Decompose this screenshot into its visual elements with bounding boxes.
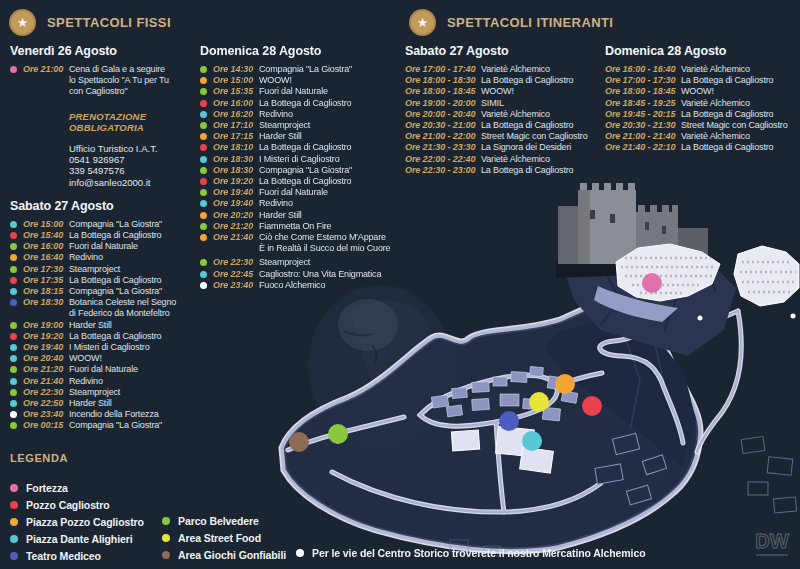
event-time: Ore 16:00	[213, 98, 259, 109]
event-title: Cagliostro: Una Vita Enigmatica	[259, 269, 400, 280]
legend-label: Piazza Dante Alighieri	[26, 533, 133, 545]
orange-legend-dot	[10, 518, 18, 526]
schedule-entry: Ore 22:30Steamproject	[200, 257, 400, 268]
schedule-column-fixed-1: Venerdì 26 AgostoOre 21:00Cena di Gala e…	[10, 44, 200, 432]
event-time: Ore 19:40	[23, 342, 69, 353]
contact-line: Ufficio Turistico I.A.T.	[69, 143, 200, 154]
map-marker-area-giochi-gonfiabili	[289, 432, 309, 452]
schedule-entry: Ore 20:30 - 21:30Street Magic con Caglio…	[605, 120, 800, 131]
event-time: Ore 15:40	[23, 230, 69, 241]
map-marker-pozzo-cagliostro	[582, 396, 602, 416]
event-title: Fiammetta On Fire	[259, 221, 400, 232]
cyan-location-dot	[10, 221, 17, 228]
event-title: La Bottega di Cagliostro	[481, 75, 603, 86]
event-time: Ore 15:00	[213, 75, 259, 86]
schedule-entry: Ore 16:00 - 16:40Varietè Alchemico	[605, 64, 800, 75]
schedule-entry: Ore 18:30I Misteri di Cagliostro	[200, 154, 400, 165]
legend-item: Teatro Mediceo	[10, 547, 144, 564]
cyan-legend-dot	[10, 535, 18, 543]
event-time: Ore 18:30	[213, 165, 259, 176]
day-date-header: Venerdì 26 Agosto	[10, 44, 200, 58]
note-line: PRENOTAZIONE	[69, 111, 200, 123]
event-title: Harder Still	[69, 320, 200, 331]
schedule-entry: Ore 16:00La Bottega di Cagliostro	[200, 98, 400, 109]
event-time: Ore 17:00 - 17:30	[605, 75, 681, 86]
event-time: Ore 21:40	[213, 232, 259, 243]
event-time: Ore 15:35	[213, 86, 259, 97]
schedule-entry: Ore 15:40La Bottega di Cagliostro	[10, 230, 200, 241]
event-time: Ore 17:10	[213, 120, 259, 131]
cyan-location-dot	[10, 355, 17, 362]
schedule-entry: Ore 23:40Incendio della Fortezza	[10, 409, 200, 420]
day-block: Domenica 28 AgostoOre 14:30Compagnia "La…	[200, 44, 400, 291]
event-time: Ore 22:30	[23, 387, 69, 398]
map-marker-parco-belvedere	[328, 424, 348, 444]
event-program-poster: ★ SPETTACOLI FISSI ★ SPETTACOLI ITINERAN…	[0, 0, 800, 569]
event-title: Redivino	[69, 376, 200, 387]
day-block: Venerdì 26 AgostoOre 21:00Cena di Gala e…	[10, 44, 200, 188]
cyan-location-dot	[200, 156, 207, 163]
event-time: Ore 21:20	[23, 364, 69, 375]
schedule-entry: Ore 17:35La Bottega di Cagliostro	[10, 275, 200, 286]
itinerant-shows-title: SPETTACOLI ITINERANTI	[447, 15, 613, 30]
schedule-entry: Ore 19:40I Misteri di Cagliostro	[10, 342, 200, 353]
event-title: Steamproject	[259, 257, 400, 268]
fixed-shows-title: SPETTACOLI FISSI	[47, 15, 171, 30]
event-time: Ore 21:40	[23, 376, 69, 387]
event-time: Ore 23:40	[213, 280, 259, 291]
white-location-dot	[10, 411, 17, 418]
event-title: Harder Still	[259, 210, 400, 221]
event-time: Ore 19:00 - 20:00	[405, 98, 481, 109]
legend-label: Pozzo Cagliostro	[26, 499, 110, 511]
schedule-entry: Ore 18:15Compagnia "La Giostra"	[10, 286, 200, 297]
event-title: Harder Still	[259, 131, 400, 142]
event-time: Ore 18:10	[213, 142, 259, 153]
event-time: Ore 22:50	[23, 398, 69, 409]
event-time: Ore 15:00	[23, 219, 69, 230]
event-time: Ore 20:20	[213, 210, 259, 221]
reservation-note: PRENOTAZIONEOBBLIGATORIA	[69, 111, 200, 134]
schedule-entry: Ore 19:20La Bottega di Cagliostro	[200, 176, 400, 187]
pink-legend-dot	[10, 484, 18, 492]
schedule-entry: Ore 22:30 - 23:00La Bottega di Cagliostr…	[405, 165, 603, 176]
event-time: Ore 18:45 - 19:25	[605, 98, 681, 109]
cyan-location-dot	[200, 200, 207, 207]
event-title: La Bottega di Cagliostro	[681, 142, 800, 153]
event-time: Ore 22:30	[213, 257, 259, 268]
event-time: Ore 17:15	[213, 131, 259, 142]
green-location-dot	[10, 389, 17, 396]
day-date-header: Sabato 27 Agosto	[405, 44, 603, 58]
legend-column-2: Parco BelvedereArea Street FoodArea Gioc…	[162, 513, 286, 563]
event-time: Ore 18:15	[23, 286, 69, 297]
schedule-entry: Ore 21:00 - 22:00Street Magic con Caglio…	[405, 131, 603, 142]
day-date-header: Domenica 28 Agosto	[200, 44, 400, 58]
day-block: Sabato 27 AgostoOre 17:00 - 17:40Varietè…	[405, 44, 603, 176]
schedule-entry: Ore 17:10Steamproject	[200, 120, 400, 131]
schedule-entry: Ore 15:35Fuori dal Naturale	[200, 86, 400, 97]
event-title: WOOW!	[69, 353, 200, 364]
event-time: Ore 20:00 - 20:40	[405, 109, 481, 120]
event-title: La Bottega di Cagliostro	[681, 75, 800, 86]
event-title: SIMIL	[481, 98, 603, 109]
event-title: Steamproject	[69, 264, 200, 275]
event-time: Ore 22:30 - 23:00	[405, 165, 481, 176]
schedule-entry: Ore 21:30 - 23:30La Signora dei Desideri	[405, 142, 603, 153]
schedule-entry: Ore 19:40Fuori dal Naturale	[200, 187, 400, 198]
event-title: Redivino	[259, 198, 400, 209]
legend-item: Area Street Food	[162, 530, 286, 547]
event-title: La Bottega di Cagliostro	[259, 98, 400, 109]
cyan-location-dot	[200, 271, 207, 278]
legend-item: Piazza Dante Alighieri	[10, 530, 144, 547]
white-location-dot	[200, 282, 207, 289]
event-time: Ore 21:00	[23, 64, 69, 75]
map-marker-teatro-mediceo	[499, 411, 519, 431]
schedule-entry: Ore 19:00 - 20:00SIMIL	[405, 98, 603, 109]
red-location-dot	[200, 100, 207, 107]
schedule-entry: Ore 22:45Cagliostro: Una Vita Enigmatica	[200, 269, 400, 280]
schedule-entry: Ore 16:20Redivino	[200, 109, 400, 120]
event-time: Ore 19:20	[23, 331, 69, 342]
blue-legend-dot	[10, 552, 18, 560]
star-icon: ★	[9, 9, 36, 36]
event-title: La Bottega di Cagliostro	[69, 275, 200, 286]
schedule-entry: Ore 21:20Fiammetta On Fire	[200, 221, 400, 232]
red-legend-dot	[10, 501, 18, 509]
schedule-entry: Ore 18:00 - 18:45WOOW!	[405, 86, 603, 97]
event-time: Ore 22:00 - 22:40	[405, 154, 481, 165]
red-location-dot	[200, 144, 207, 151]
event-title: Steamproject	[259, 120, 400, 131]
pink-location-dot	[10, 66, 17, 73]
event-title: Fuori dal Naturale	[259, 187, 400, 198]
green-location-dot	[200, 122, 207, 129]
event-time: Ore 19:45 - 20:15	[605, 109, 681, 120]
red-location-dot	[10, 232, 17, 239]
cyan-location-dot	[10, 344, 17, 351]
legend-label: Parco Belvedere	[178, 515, 259, 527]
event-time: Ore 18:30	[23, 297, 69, 308]
schedule-entry: Ore 18:30Botanica Celeste nel Segno di F…	[10, 297, 200, 319]
event-time: Ore 16:40	[23, 252, 69, 263]
schedule-entry: Ore 16:40Redivino	[10, 252, 200, 263]
map-marker-fortezza	[642, 273, 662, 293]
green-location-dot	[10, 322, 17, 329]
event-title: La Bottega di Cagliostro	[259, 142, 400, 153]
yellow-legend-dot	[162, 534, 170, 542]
event-time: Ore 19:00	[23, 320, 69, 331]
event-time: Ore 17:00 - 17:40	[405, 64, 481, 75]
event-title: Redivino	[259, 109, 400, 120]
event-time: Ore 21:20	[213, 221, 259, 232]
itinerant-shows-header: ★ SPETTACOLI ITINERANTI	[409, 9, 613, 36]
event-time: Ore 17:30	[23, 264, 69, 275]
event-title: La Bottega di Cagliostro	[481, 120, 603, 131]
event-title: I Misteri di Cagliostro	[259, 154, 400, 165]
legend-item: Piazza Pozzo Cagliostro	[10, 514, 144, 531]
event-title: Varietè Alchemico	[481, 109, 603, 120]
green-location-dot	[10, 266, 17, 273]
schedule-entry: Ore 22:50Harder Still	[10, 398, 200, 409]
green-legend-dot	[162, 517, 170, 525]
green-location-dot	[200, 259, 207, 266]
legend-label: Area Giochi Gonfiabili	[178, 549, 286, 561]
day-block: Domenica 28 AgostoOre 16:00 - 16:40Varie…	[605, 44, 800, 154]
schedule-entry: Ore 14:30Compagnia "La Giostra"	[200, 64, 400, 75]
event-title: Compagnia "La Giostra"	[69, 286, 200, 297]
event-time: Ore 19:40	[213, 198, 259, 209]
event-title: Varietè Alchemico	[681, 131, 800, 142]
event-title: Fuori dal Naturale	[259, 86, 400, 97]
schedule-entry: Ore 18:45 - 19:25Varietè Alchemico	[605, 98, 800, 109]
event-time: Ore 21:00 - 22:00	[405, 131, 481, 142]
event-time: Ore 21:40 - 22:10	[605, 142, 681, 153]
green-location-dot	[10, 366, 17, 373]
day-block: Sabato 27 AgostoOre 15:00Compagnia "La G…	[10, 199, 200, 432]
schedule-column-fixed-2: Domenica 28 AgostoOre 14:30Compagnia "La…	[200, 44, 400, 291]
schedule-entry: Ore 15:00WOOW!	[200, 75, 400, 86]
event-time: Ore 18:00 - 18:45	[605, 86, 681, 97]
legend-item: Fortezza	[10, 480, 144, 497]
schedule-entry: Ore 20:30 - 21:00La Bottega di Cagliostr…	[405, 120, 603, 131]
legend-item: Pozzo Cagliostro	[10, 497, 144, 514]
schedule-entry: Ore 20:40WOOW!	[10, 353, 200, 364]
legend-item: Area Giochi Gonfiabili	[162, 547, 286, 564]
note-line: OBBLIGATORIA	[69, 122, 200, 134]
schedule-entry: Ore 18:00 - 18:45WOOW!	[605, 86, 800, 97]
event-time: Ore 21:00 - 21:40	[605, 131, 681, 142]
event-time: Ore 18:00 - 18:45	[405, 86, 481, 97]
schedule-entry: Ore 17:15Harder Still	[200, 131, 400, 142]
schedule-entry: Ore 20:20Harder Still	[200, 210, 400, 221]
event-title: Varietè Alchemico	[481, 154, 603, 165]
white-legend-dot	[296, 549, 304, 557]
schedule-entry: Ore 21:20Fuori dal Naturale	[10, 364, 200, 375]
legend-label: Fortezza	[26, 482, 68, 494]
cyan-location-dot	[10, 400, 17, 407]
event-title: WOOW!	[481, 86, 603, 97]
event-title: Fuoco Alchemico	[259, 280, 400, 291]
event-time: Ore 16:00 - 16:40	[605, 64, 681, 75]
event-time: Ore 20:40	[23, 353, 69, 364]
market-note: Per le vie del Centro Storico troverete …	[296, 547, 645, 559]
blue-location-dot	[10, 299, 17, 306]
schedule-entry: Ore 18:10La Bottega di Cagliostro	[200, 142, 400, 153]
schedule-column-itinerant-2: Domenica 28 AgostoOre 16:00 - 16:40Varie…	[605, 44, 800, 154]
orange-location-dot	[200, 77, 207, 84]
contact-line: 0541 926967	[69, 154, 200, 165]
event-time: Ore 18:30	[213, 154, 259, 165]
event-time: Ore 17:35	[23, 275, 69, 286]
legend-column-1: FortezzaPozzo CagliostroPiazza Pozzo Cag…	[10, 480, 144, 564]
event-title: La Bottega di Cagliostro	[69, 331, 200, 342]
event-title: Steamproject	[69, 387, 200, 398]
star-icon: ★	[409, 9, 436, 36]
schedule-entry: Ore 17:00 - 17:30La Bottega di Cagliostr…	[605, 75, 800, 86]
market-note-label: Per le vie del Centro Storico troverete …	[312, 547, 645, 559]
event-title: Fuori dal Naturale	[69, 364, 200, 375]
map-marker-area-street-food	[529, 392, 549, 412]
watermark-monogram: DW	[755, 530, 788, 552]
schedule-entry: Ore 18:00 - 18:30La Bottega di Cagliostr…	[405, 75, 603, 86]
event-time: Ore 16:00	[23, 241, 69, 252]
green-location-dot	[200, 189, 207, 196]
schedule-entry: Ore 17:30Steamproject	[10, 264, 200, 275]
orange-location-dot	[10, 254, 17, 261]
event-time: Ore 19:40	[213, 187, 259, 198]
schedule-entry: Ore 19:40Redivino	[200, 198, 400, 209]
orange-location-dot	[200, 212, 207, 219]
event-title: Redivino	[69, 252, 200, 263]
event-title: Compagnia "La Giostra"	[69, 420, 200, 431]
event-time: Ore 20:30 - 21:00	[405, 120, 481, 131]
legend-label: Area Street Food	[178, 532, 261, 544]
event-time: Ore 14:30	[213, 64, 259, 75]
event-title: Varietè Alchemico	[681, 64, 800, 75]
schedule-entry: Ore 18:30Compagnia "La Giostra"	[200, 165, 400, 176]
cyan-location-dot	[10, 378, 17, 385]
map-marker-piazza-pozzo-cagliostro	[555, 374, 575, 394]
orange-location-dot	[200, 234, 207, 241]
event-title: Compagnia "La Giostra"	[69, 219, 200, 230]
cyan-location-dot	[10, 288, 17, 295]
green-location-dot	[10, 243, 17, 250]
contact-line: info@sanleo2000.it	[69, 177, 200, 188]
legend-title: LEGENDA	[10, 452, 310, 464]
day-date-header: Domenica 28 Agosto	[605, 44, 800, 58]
event-title: Varietè Alchemico	[681, 98, 800, 109]
schedule-entry: Ore 20:00 - 20:40Varietè Alchemico	[405, 109, 603, 120]
schedule-entry: Ore 23:40Fuoco Alchemico	[200, 280, 400, 291]
event-title: Fuori dal Naturale	[69, 241, 200, 252]
green-location-dot	[200, 167, 207, 174]
event-time: Ore 16:20	[213, 109, 259, 120]
event-title: La Signora dei Desideri	[481, 142, 603, 153]
fixed-shows-header: ★ SPETTACOLI FISSI	[9, 9, 171, 36]
schedule-entry: Ore 22:00 - 22:40Varietè Alchemico	[405, 154, 603, 165]
schedule-entry: Ore 21:00 - 21:40Varietè Alchemico	[605, 131, 800, 142]
brown-legend-dot	[162, 551, 170, 559]
event-title: Botanica Celeste nel Segno di Federico d…	[69, 297, 200, 319]
event-title: Street Magic con Cagliostro	[681, 120, 800, 131]
event-time: Ore 21:30 - 23:30	[405, 142, 481, 153]
event-title: Ciò che Come Esterno M'Appare È in Realt…	[259, 232, 400, 254]
event-title: La Bottega di Cagliostro	[481, 165, 603, 176]
event-title: Incendio della Fortezza	[69, 409, 200, 420]
schedule-entry: Ore 22:30Steamproject	[10, 387, 200, 398]
schedule-entry: Ore 21:40Redivino	[10, 376, 200, 387]
schedule-entry: Ore 19:00Harder Still	[10, 320, 200, 331]
cyan-location-dot	[200, 111, 207, 118]
green-location-dot	[200, 223, 207, 230]
red-location-dot	[200, 178, 207, 185]
event-time: Ore 20:30 - 21:30	[605, 120, 681, 131]
red-location-dot	[10, 277, 17, 284]
schedule-entry: Ore 19:20La Bottega di Cagliostro	[10, 331, 200, 342]
event-time: Ore 23:40	[23, 409, 69, 420]
schedule-column-itinerant-1: Sabato 27 AgostoOre 17:00 - 17:40Varietè…	[405, 44, 603, 176]
event-title: La Bottega di Cagliostro	[259, 176, 400, 187]
event-title: Compagnia "La Giostra"	[259, 64, 400, 75]
legend: LEGENDA FortezzaPozzo CagliostroPiazza P…	[10, 452, 310, 464]
event-time: Ore 19:20	[213, 176, 259, 187]
schedule-entry: Ore 21:40Ciò che Come Esterno M'Appare È…	[200, 232, 400, 254]
orange-location-dot	[200, 133, 207, 140]
watermark-logo: DW	[750, 527, 794, 565]
contact-info: Ufficio Turistico I.A.T.0541 926967339 5…	[69, 143, 200, 188]
contact-line: 339 5497576	[69, 165, 200, 176]
watermark-bar	[756, 554, 788, 556]
event-title: Compagnia "La Giostra"	[259, 165, 400, 176]
schedule-entry: Ore 17:00 - 17:40Varietè Alchemico	[405, 64, 603, 75]
green-location-dot	[200, 88, 207, 95]
schedule-entry: Ore 16:00Fuori dal Naturale	[10, 241, 200, 252]
event-time: Ore 22:45	[213, 269, 259, 280]
legend-item: Parco Belvedere	[162, 513, 286, 530]
event-title: Harder Still	[69, 398, 200, 409]
event-title: WOOW!	[259, 75, 400, 86]
event-time: Ore 00:15	[23, 420, 69, 431]
event-title: Street Magic con Cagliostro	[481, 131, 603, 142]
schedule-entry: Ore 21:00Cena di Gala e a seguire lo Spe…	[10, 64, 200, 98]
event-title: La Bottega di Cagliostro	[681, 109, 800, 120]
legend-label: Piazza Pozzo Cagliostro	[26, 516, 144, 528]
green-location-dot	[200, 66, 207, 73]
legend-label: Teatro Mediceo	[26, 550, 101, 562]
schedule-entry: Ore 19:45 - 20:15La Bottega di Cagliostr…	[605, 109, 800, 120]
schedule-entry: Ore 00:15Compagnia "La Giostra"	[10, 420, 200, 431]
event-title: Cena di Gala e a seguire lo Spettacolo "…	[69, 64, 200, 98]
event-title: WOOW!	[681, 86, 800, 97]
red-location-dot	[10, 333, 17, 340]
event-title: La Bottega di Cagliostro	[69, 230, 200, 241]
event-time: Ore 18:00 - 18:30	[405, 75, 481, 86]
event-title: Varietè Alchemico	[481, 64, 603, 75]
schedule-entry: Ore 21:40 - 22:10La Bottega di Cagliostr…	[605, 142, 800, 153]
event-title: I Misteri di Cagliostro	[69, 342, 200, 353]
day-date-header: Sabato 27 Agosto	[10, 199, 200, 213]
schedule-entry: Ore 15:00Compagnia "La Giostra"	[10, 219, 200, 230]
map-marker-piazza-dante-alighieri	[522, 431, 542, 451]
green-location-dot	[10, 422, 17, 429]
